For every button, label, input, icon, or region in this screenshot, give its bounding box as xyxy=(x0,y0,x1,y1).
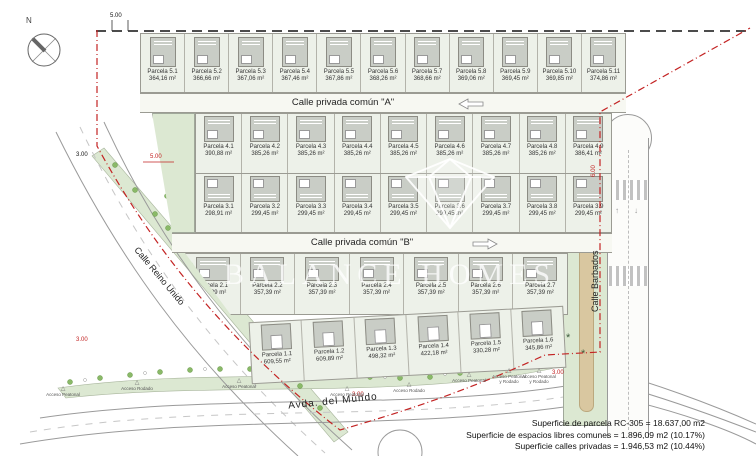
access-label: Acceso Peatonal xyxy=(452,378,486,383)
dim-top: 5.00 xyxy=(110,13,122,19)
calle-barbados-label: Calle Barbados xyxy=(590,250,600,312)
access-label: Acceso Rodado xyxy=(121,386,153,391)
access-marker: △Acceso Rodado xyxy=(392,382,426,393)
access-label: Acceso Rodado xyxy=(393,388,425,393)
summary-line-2: Superficie de espacios libres comunes = … xyxy=(466,430,705,442)
access-marker: △Acceso Peatonal xyxy=(330,386,364,397)
access-marker: △Acceso Rodado xyxy=(120,380,154,391)
access-marker: △Acceso Peatonal xyxy=(46,386,80,397)
access-label: Acceso Peatonal y Rodado xyxy=(522,374,556,384)
access-label: Acceso Peatonal y Rodado xyxy=(492,374,526,384)
compass-north-label: N xyxy=(26,16,32,25)
surface-summary: Superficie de parcela RC-305 = 18.637,00… xyxy=(466,418,705,453)
access-label: Acceso Peatonal xyxy=(330,392,364,397)
watermark-diamond-icon xyxy=(405,158,495,230)
dim-bottom-left-red: 3.00 xyxy=(76,337,88,343)
access-marker: △Acceso Peatonal xyxy=(222,378,256,389)
dim-right-red: 6.00 xyxy=(591,165,597,177)
dim-left-red: 5.00 xyxy=(150,154,162,160)
summary-line-1: Superficie de parcela RC-305 = 18.637,00… xyxy=(466,418,705,430)
access-marker: △Acceso Peatonal y Rodado xyxy=(522,368,556,384)
access-marker: △Acceso Peatonal xyxy=(452,372,486,383)
access-label: Acceso Peatonal xyxy=(222,384,256,389)
north-arrow-compass xyxy=(28,34,60,66)
dim-left-black: 3.00 xyxy=(76,152,88,158)
boundary-layer xyxy=(0,0,756,456)
access-marker: △Acceso Peatonal y Rodado xyxy=(492,368,526,384)
site-plan: ↑ ↓ * * * * Parcela 5.1 364,16 m² Parcel… xyxy=(0,0,756,456)
access-label: Acceso Peatonal xyxy=(46,392,80,397)
summary-line-3: Superficie calles privadas = 1.946,53 m2… xyxy=(466,441,705,453)
